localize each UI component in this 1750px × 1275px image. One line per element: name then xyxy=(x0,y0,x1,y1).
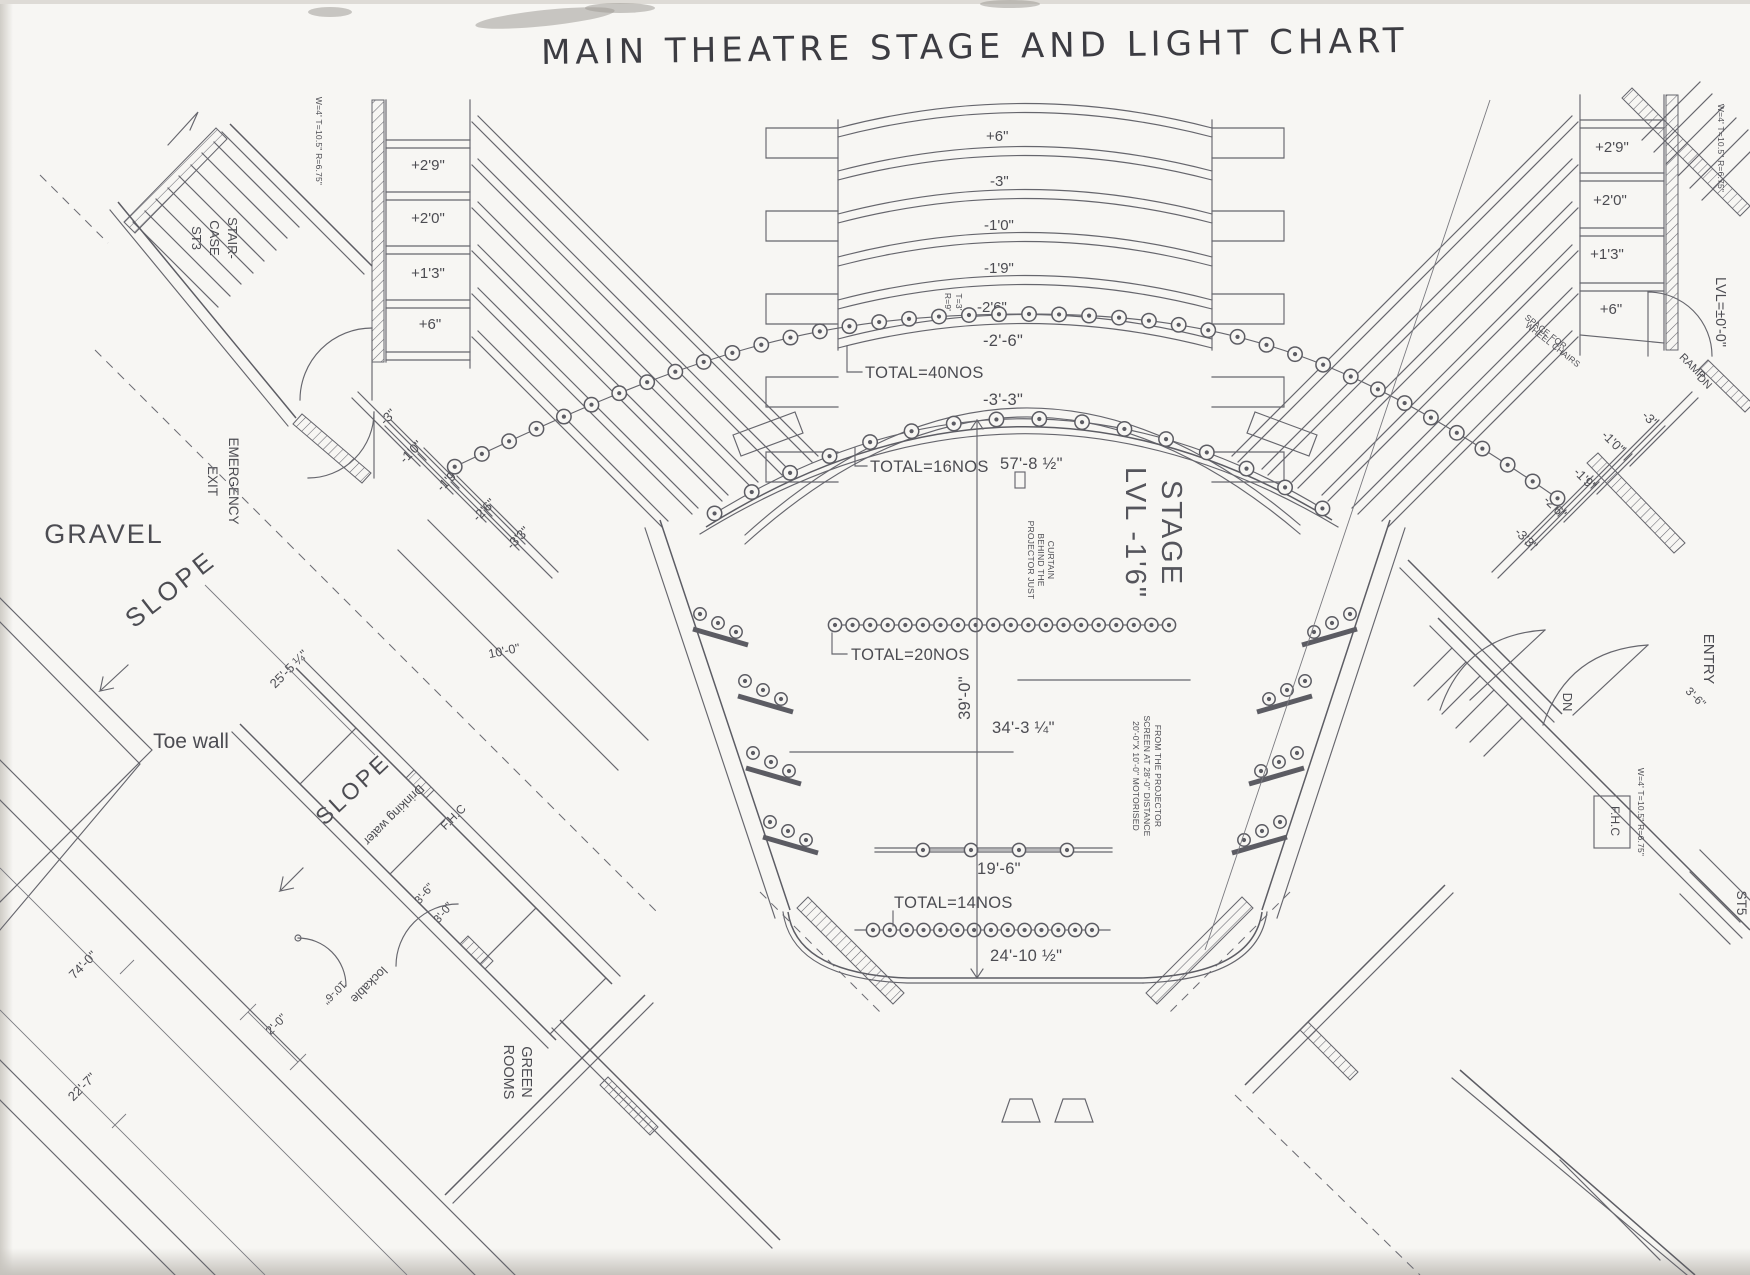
row-label-plus6: +6" xyxy=(986,128,1008,145)
st5-label: ST5 xyxy=(1734,891,1749,916)
light-fixture-dot xyxy=(997,312,1001,316)
stage-width-back: 57'-8 ½" xyxy=(1000,455,1063,473)
dn-label: DN xyxy=(1560,693,1575,712)
total-20-label: TOTAL=20NOS xyxy=(851,646,970,664)
drawing-title: MAIN THEATRE STAGE AND LIGHT CHART xyxy=(541,21,1409,73)
slope-arrow-upper xyxy=(100,665,128,691)
light-fixture-dot xyxy=(712,511,716,515)
light-fixture-dot xyxy=(1061,623,1065,627)
total-16-label: TOTAL=16NOS xyxy=(870,458,989,476)
blueprint-canvas: MAIN THEATRE STAGE AND LIGHT CHART +6" -… xyxy=(0,0,1750,1275)
platform-label-l2: +2'0" xyxy=(411,210,445,227)
screen-note-1: 20'-0"X 10'-0" MOTORISED xyxy=(1131,721,1141,831)
light-fixture-dot xyxy=(1006,928,1010,932)
dim-minus-3-3: -3'-3" xyxy=(983,391,1023,409)
light-fixture-dot xyxy=(1206,328,1210,332)
light-fixture-dot xyxy=(1321,363,1325,367)
st5-spec: W=4' T=10.5" R=6.75" xyxy=(1636,768,1646,856)
st3-spec: W=4' T=10.5" R=6.75" xyxy=(314,97,324,185)
green-rooms: GREEN ROOMS xyxy=(445,995,780,1248)
light-fixture-dot xyxy=(833,623,837,627)
toe-wall-label: Toe wall xyxy=(153,730,229,753)
slope-upper-label: SLOPE xyxy=(119,544,222,633)
platform-label-l3: +1'3" xyxy=(411,265,445,282)
light-fixture-dot xyxy=(734,630,738,634)
light-fixture-dot xyxy=(1149,623,1153,627)
light-fixture-dot xyxy=(562,414,566,418)
light-fixture-dot xyxy=(847,324,851,328)
green-rooms-line2: ROOMS xyxy=(500,1045,516,1100)
drinking-water-label: Drinking water xyxy=(361,782,427,848)
light-fixture-dot xyxy=(1087,313,1091,317)
light-fixture-dot xyxy=(938,928,942,932)
fhc-right-label: F.H.C xyxy=(1608,806,1622,836)
emergency-exit: EMERGENCY EXIT xyxy=(110,202,374,525)
projector-sight-line xyxy=(1205,100,1490,950)
light-fixture-dot xyxy=(1480,446,1484,450)
light-fixture-dot xyxy=(788,335,792,339)
light-fixture-dot xyxy=(989,928,993,932)
light-fixture-dot xyxy=(1023,928,1027,932)
platform-label-l4: +6" xyxy=(419,316,441,333)
light-fixture-dot xyxy=(751,751,755,755)
light-fixture-dot xyxy=(1531,479,1535,483)
light-fixture-dot xyxy=(1147,319,1151,323)
stage-name: STAGE xyxy=(1155,480,1187,586)
light-fixture-dot xyxy=(1057,312,1061,316)
light-fixture-dot xyxy=(673,370,677,374)
light-fixture-dot xyxy=(1278,820,1282,824)
st3-line2: CASE xyxy=(207,220,222,256)
light-fixture-dot xyxy=(617,391,621,395)
light-fixture-dot xyxy=(967,313,971,317)
light-fixture-dot xyxy=(1555,496,1559,500)
light-fixture-dot xyxy=(1056,928,1060,932)
emergency-label: EMERGENCY xyxy=(226,437,241,524)
light-fixture-dot xyxy=(907,317,911,321)
stage-area: 57'-8 ½" PROJECTOR JUST BEHIND THE CURTA… xyxy=(645,412,1405,1122)
light-fixture-dot xyxy=(991,623,995,627)
ramp-door-swing xyxy=(1648,292,1712,356)
dim-minus-2-6: -2'-6" xyxy=(983,332,1023,350)
light-fixture-dot xyxy=(886,623,890,627)
gravel-label: GRAVEL xyxy=(44,519,164,549)
wing-label-r-1-0: -1'0" xyxy=(1599,427,1628,456)
light-fixture-dot xyxy=(1320,506,1324,510)
light-fixture-dot xyxy=(788,471,792,475)
door-swing-lockable xyxy=(298,938,346,986)
st4-spec: W=4' T=10.5" R=6.75" xyxy=(1716,104,1726,192)
light-fixture-dot xyxy=(769,760,773,764)
staircase-st3: STAIR- CASE ST3 W=4' T=10.5" R=6.75" xyxy=(124,97,372,307)
light-fixture-dot xyxy=(787,769,791,773)
light-fixture-dot xyxy=(850,623,854,627)
dim-19-6: 19'-6" xyxy=(977,860,1021,878)
light-fixture-dot xyxy=(1037,417,1041,421)
screen-width: 34'-3 ¼" xyxy=(992,719,1055,737)
light-fixture-dot xyxy=(952,421,956,425)
light-fixture-dot xyxy=(1429,416,1433,420)
dim-24-10: 24'-10 ½" xyxy=(990,947,1062,965)
light-fixture-dot xyxy=(1132,623,1136,627)
projector-note-1: PROJECTOR JUST xyxy=(1026,521,1036,600)
fhc-left-label: F.H.C xyxy=(438,801,469,832)
row-label-minus3: -3" xyxy=(990,173,1009,190)
rooms-corridor-left: Drinking water F.H.C lockable 10'-6" 3'-… xyxy=(232,660,620,1048)
dim-3-6-left: 3'-6" xyxy=(413,881,437,906)
light-fixture-dot xyxy=(786,829,790,833)
light-fixture-dot xyxy=(1349,374,1353,378)
light-fixture-dot xyxy=(1285,688,1289,692)
light-fixture-dot xyxy=(1065,848,1069,852)
light-fixture-dot xyxy=(1080,420,1084,424)
light-fixture-dot xyxy=(1177,323,1181,327)
light-fixture-dot xyxy=(534,427,538,431)
light-fixture-dot xyxy=(1044,623,1048,627)
light-fixture-dot xyxy=(730,351,734,355)
right-wing-low-steps: -3" -1'0" -1'9" -2'6" -3'3" xyxy=(1492,392,1698,578)
light-fixture-dot xyxy=(453,465,457,469)
wing-label-r-3in: -3" xyxy=(1639,408,1661,430)
lockable-label: lockable xyxy=(348,964,390,1006)
platform-label-r4: +6" xyxy=(1600,301,1622,318)
light-fixture-dot xyxy=(938,623,942,627)
dim-3-6-right: 3'-6" xyxy=(1683,686,1708,711)
left-platform: +2'9" +2'0" +1'3" +6" xyxy=(372,100,470,368)
light-fixture-dot xyxy=(877,320,881,324)
aisle-stair-steps xyxy=(766,128,1284,482)
light-fixture-dot xyxy=(761,688,765,692)
light-fixture-dot xyxy=(956,623,960,627)
platform-label-r1: +2'9" xyxy=(1595,139,1629,156)
light-fixture-dot xyxy=(1205,450,1209,454)
light-fixture-dot xyxy=(1009,623,1013,627)
light-fixture-dot xyxy=(1455,431,1459,435)
page-title: MAIN THEATRE STAGE AND LIGHT CHART xyxy=(541,21,1409,73)
light-fixture-dot xyxy=(1303,679,1307,683)
light-fixture-dot xyxy=(1283,485,1287,489)
light-fixture-dot xyxy=(759,343,763,347)
light-fixture-dot xyxy=(1027,312,1031,316)
light-fixture-dot xyxy=(1330,621,1334,625)
projector-note-2: BEHIND THE xyxy=(1036,533,1046,586)
light-fixture-dot xyxy=(507,439,511,443)
lvl-zero-label: LVL=±0'-0" xyxy=(1712,277,1728,347)
light-fixture-dot xyxy=(1267,697,1271,701)
light-fixture-dot xyxy=(589,403,593,407)
staircase-st4: W=4' T=10.5" R=6.75" xyxy=(1622,82,1750,216)
light-fixture-dot xyxy=(1039,928,1043,932)
light-fixture-dot xyxy=(1164,437,1168,441)
light-fixture-dot xyxy=(1117,316,1121,320)
light-fixture-dot xyxy=(1097,623,1101,627)
light-fixture-dot xyxy=(702,360,706,364)
light-fixture-dot xyxy=(1122,427,1126,431)
st3-line1: STAIR- xyxy=(225,217,240,259)
light-fixture-dot xyxy=(888,928,892,932)
light-fixture-dot xyxy=(921,848,925,852)
wing-label-r-3-3: -3'3" xyxy=(1512,524,1541,553)
light-note-r9: R=9' xyxy=(943,293,953,311)
light-fixture-dot xyxy=(716,621,720,625)
light-fixture-dot xyxy=(750,490,754,494)
light-fixture-dot xyxy=(905,928,909,932)
light-fixture-dot xyxy=(779,697,783,701)
scanned-blueprint-page: MAIN THEATRE STAGE AND LIGHT CHART +6" -… xyxy=(0,0,1750,1275)
total-40-label: TOTAL=40NOS xyxy=(865,364,984,382)
light-fixture-dot xyxy=(1295,751,1299,755)
entry-label: ENTRY xyxy=(1700,634,1717,685)
light-fixture-dot xyxy=(818,329,822,333)
light-fixture-dot xyxy=(868,440,872,444)
light-fixture-dot xyxy=(969,848,973,852)
left-wing-low-steps: -3" -1'0" -1'9" -2'6" -3'3" xyxy=(352,392,558,578)
light-fixture-dot xyxy=(480,452,484,456)
row-label-minus1-9: -1'9" xyxy=(984,260,1014,277)
light-fixture-dot xyxy=(743,679,747,683)
light-fixture-dot xyxy=(1026,623,1030,627)
exit-label: EXIT xyxy=(205,466,220,496)
light-fixture-dot xyxy=(804,838,808,842)
light-fixture-dot xyxy=(994,417,998,421)
light-fixture-dot xyxy=(921,623,925,627)
green-rooms-line1: GREEN xyxy=(518,1046,534,1098)
light-fixture-dot xyxy=(1264,343,1268,347)
light-fixture-dot xyxy=(868,623,872,627)
row-label-minus1-0: -1'0" xyxy=(984,217,1014,234)
light-fixture-dot xyxy=(1090,928,1094,932)
platform-label-l1: +2'9" xyxy=(411,157,445,174)
stage-depth: 39'-0" xyxy=(956,676,974,720)
screen-note-2: SCREEN AT 28'-0" DISTANCE xyxy=(1142,715,1152,836)
light-fixture-dot xyxy=(921,928,925,932)
light-fixture-dot xyxy=(698,612,702,616)
light-fixture-dot xyxy=(1403,401,1407,405)
projector-symbol xyxy=(1015,472,1025,488)
projector-note-3: CURTAIN xyxy=(1046,541,1056,579)
screen-note-3: FROM THE PROJECTOR xyxy=(1153,725,1163,827)
light-fixture-dot xyxy=(645,380,649,384)
platform-label-r3: +1'3" xyxy=(1590,246,1624,263)
light-fixture-dot xyxy=(1079,623,1083,627)
slope-arrow-lower xyxy=(280,868,303,891)
light-fixture-dot xyxy=(1073,928,1077,932)
left-radial-aisle: 10'-0" xyxy=(398,520,648,770)
light-fixture-dot xyxy=(1244,467,1248,471)
light-fixture-dot xyxy=(1506,463,1510,467)
light-fixture-dot xyxy=(1259,769,1263,773)
light-fixture-dot xyxy=(909,429,913,433)
total-14-label: TOTAL=14NOS xyxy=(894,894,1013,912)
light-fixture-dot xyxy=(1167,623,1171,627)
stage-level: LVL -1'6" xyxy=(1119,467,1151,599)
light-fixture-dot xyxy=(1293,352,1297,356)
light-fixture-dot xyxy=(955,928,959,932)
platform-label-r2: +2'0" xyxy=(1593,192,1627,209)
entry-door-swing-2 xyxy=(1543,645,1648,725)
dim-74-0: 74'-0" xyxy=(66,948,100,982)
st3-line3: ST3 xyxy=(189,226,204,250)
light-fixture-dot xyxy=(1235,335,1239,339)
dim-2-0: 2'-0" xyxy=(263,1011,290,1038)
light-fixture-dot xyxy=(1376,387,1380,391)
light-fixture-dot xyxy=(1114,623,1118,627)
light-fixture-dot xyxy=(1277,760,1281,764)
light-fixture-dot xyxy=(972,928,976,932)
light-fixture-dot xyxy=(903,623,907,627)
right-side: DN ENTRY 3'-6" F.H.C W=4' T=10.5" R=6.75… xyxy=(1235,277,1750,1275)
light-fixture-dot xyxy=(871,928,875,932)
light-fixture-dot xyxy=(1348,612,1352,616)
dim-22-7: 22'-7" xyxy=(65,1070,99,1104)
light-fixture-dot xyxy=(1260,829,1264,833)
light-note-t3: T=3' xyxy=(954,293,964,310)
light-fixture-dot xyxy=(937,314,941,318)
light-fixture-dot xyxy=(827,454,831,458)
dim-10-6: 10'-6" xyxy=(320,978,348,1006)
light-fixture-dot xyxy=(768,820,772,824)
light-fixture-dot xyxy=(1017,848,1021,852)
